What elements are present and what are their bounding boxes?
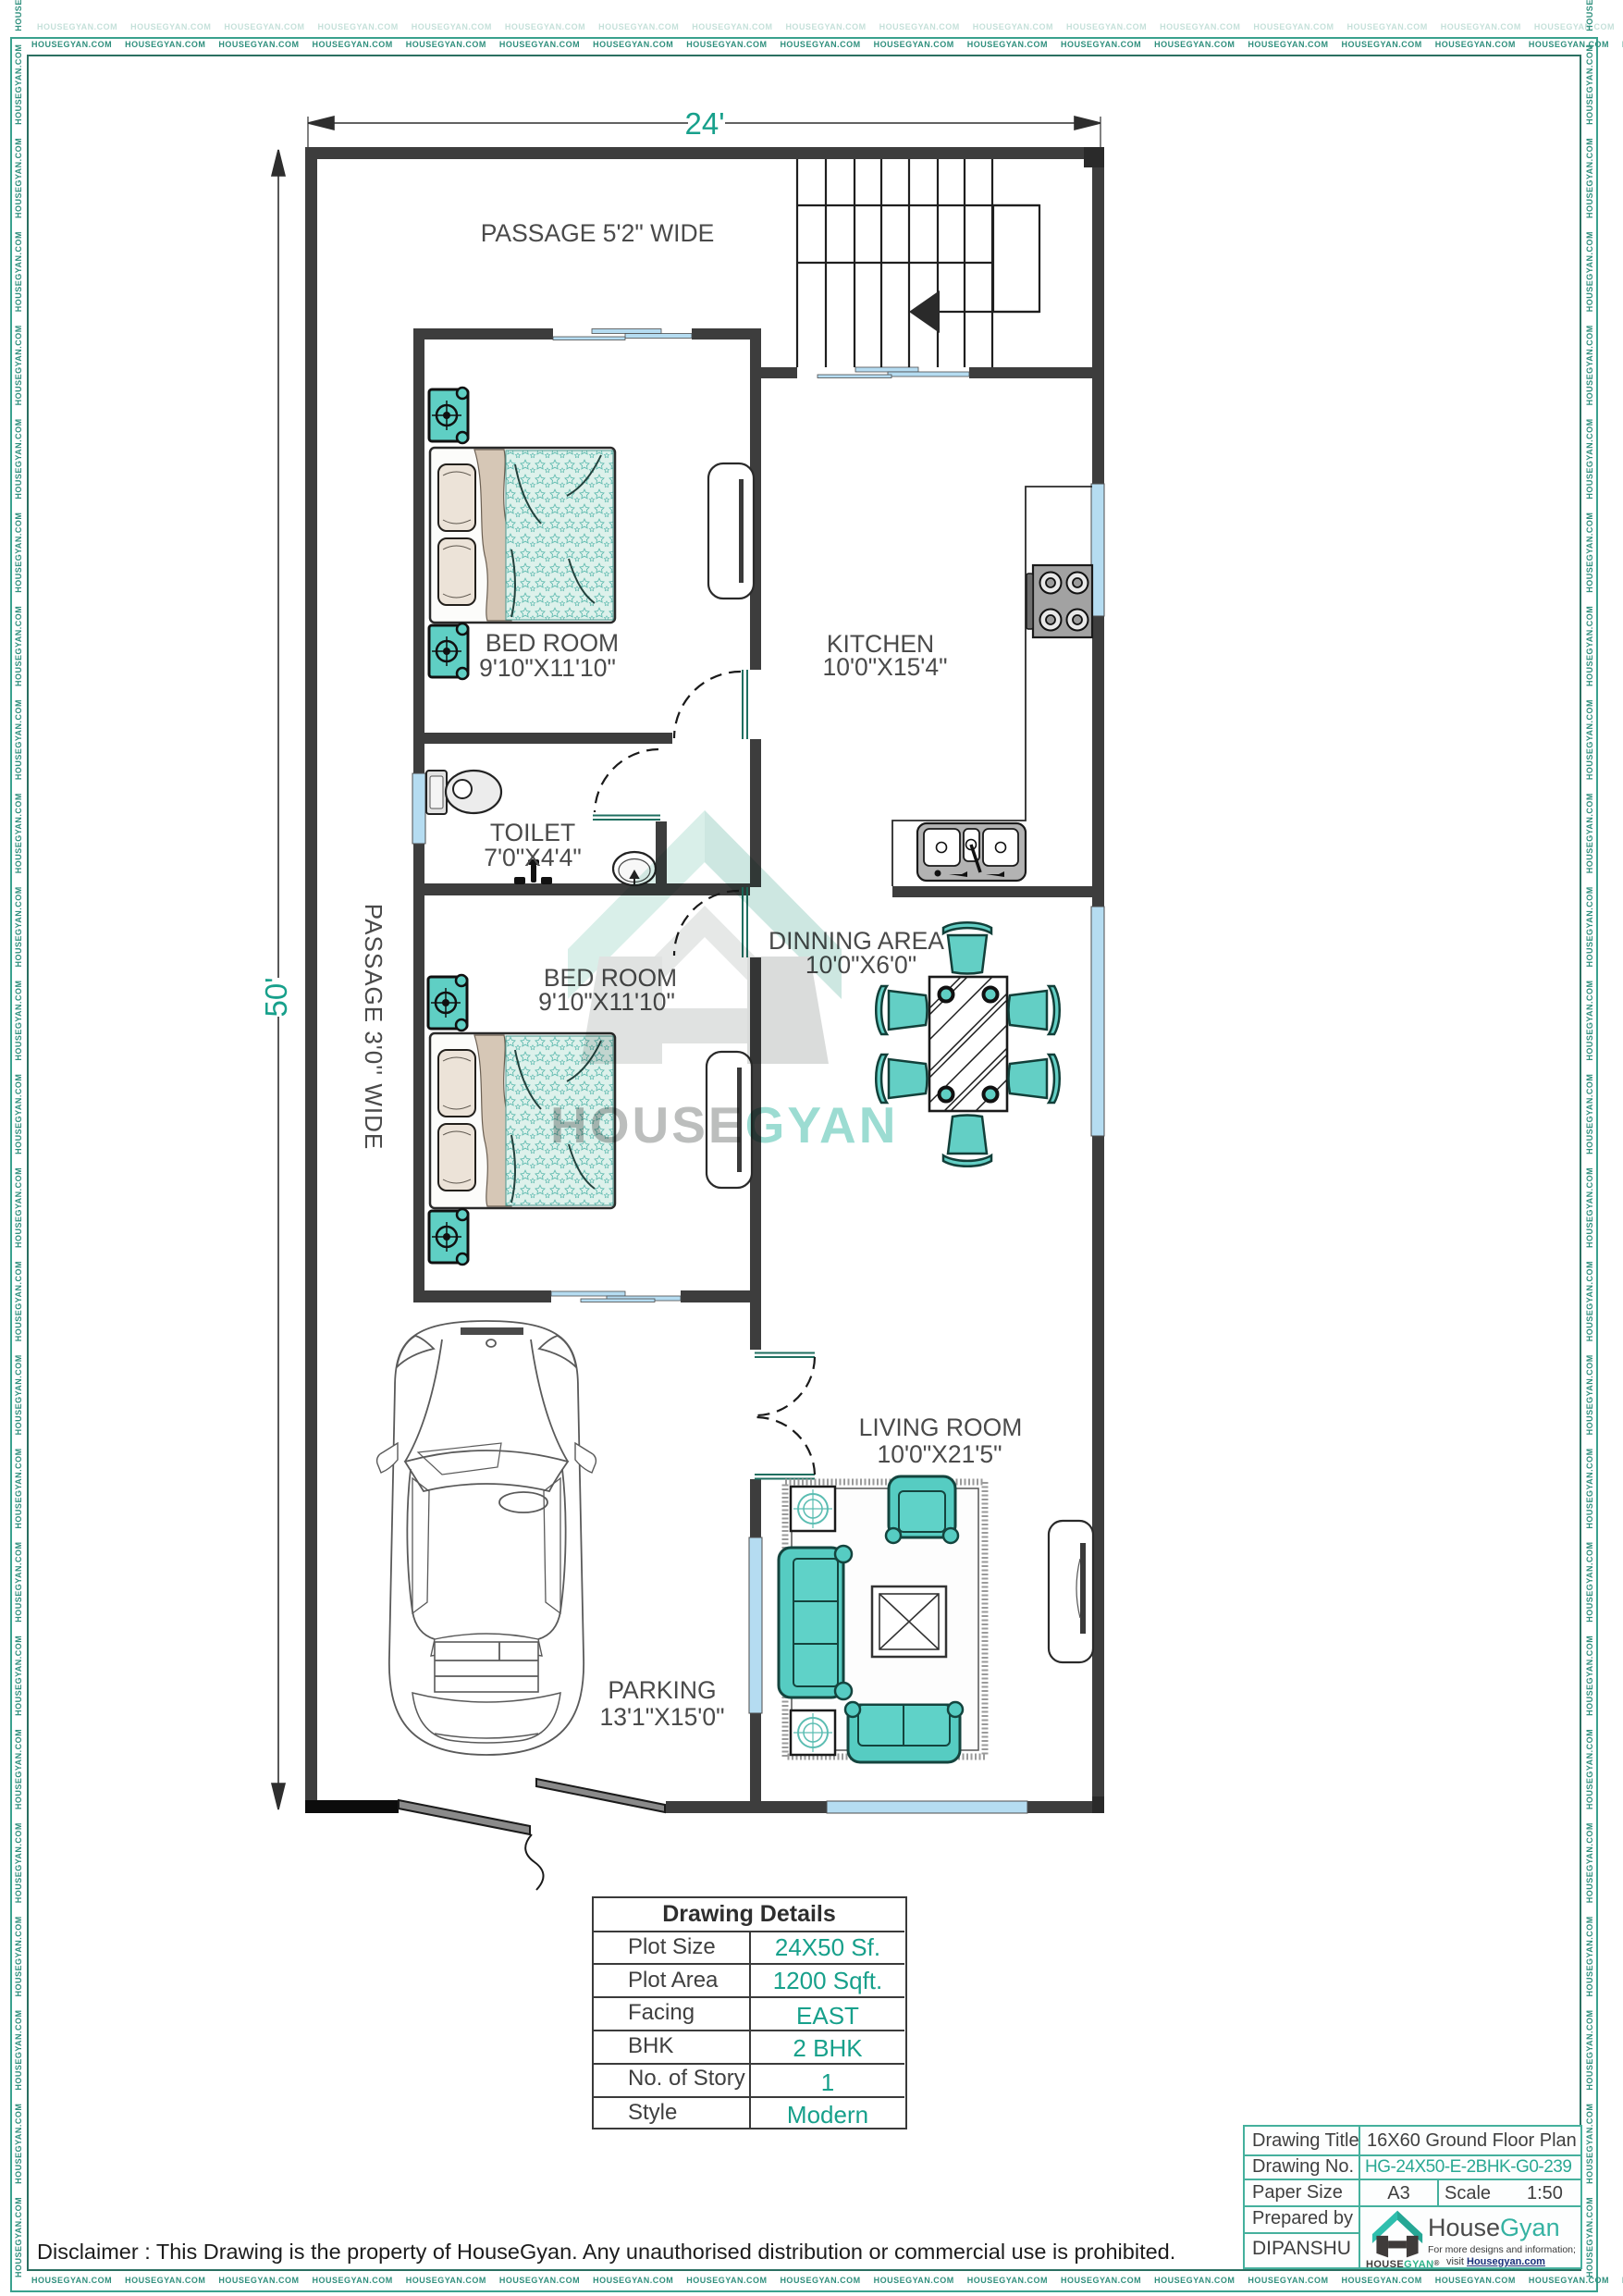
svg-text:50': 50' bbox=[259, 977, 293, 1017]
svg-text:PARKING: PARKING bbox=[608, 1676, 716, 1704]
svg-text:24': 24' bbox=[684, 106, 724, 141]
svg-text:HOUSEGYAN: HOUSEGYAN bbox=[550, 1096, 898, 1154]
svg-text:BED ROOM: BED ROOM bbox=[486, 629, 619, 657]
svg-text:9'10"X11'10": 9'10"X11'10" bbox=[479, 654, 616, 682]
svg-text:PASSAGE 5'2" WIDE: PASSAGE 5'2" WIDE bbox=[481, 219, 715, 247]
svg-text:7'0"X4'4": 7'0"X4'4" bbox=[484, 844, 582, 871]
svg-text:10'0"X21'5": 10'0"X21'5" bbox=[877, 1440, 1002, 1468]
svg-text:TOILET: TOILET bbox=[490, 819, 575, 846]
svg-text:PASSAGE 3'0'' WIDE: PASSAGE 3'0'' WIDE bbox=[360, 904, 387, 1151]
svg-text:13'1"X15'0": 13'1"X15'0" bbox=[599, 1703, 724, 1731]
svg-text:10'0"X15'4": 10'0"X15'4" bbox=[822, 653, 947, 681]
svg-text:LIVING ROOM: LIVING ROOM bbox=[859, 1413, 1023, 1441]
